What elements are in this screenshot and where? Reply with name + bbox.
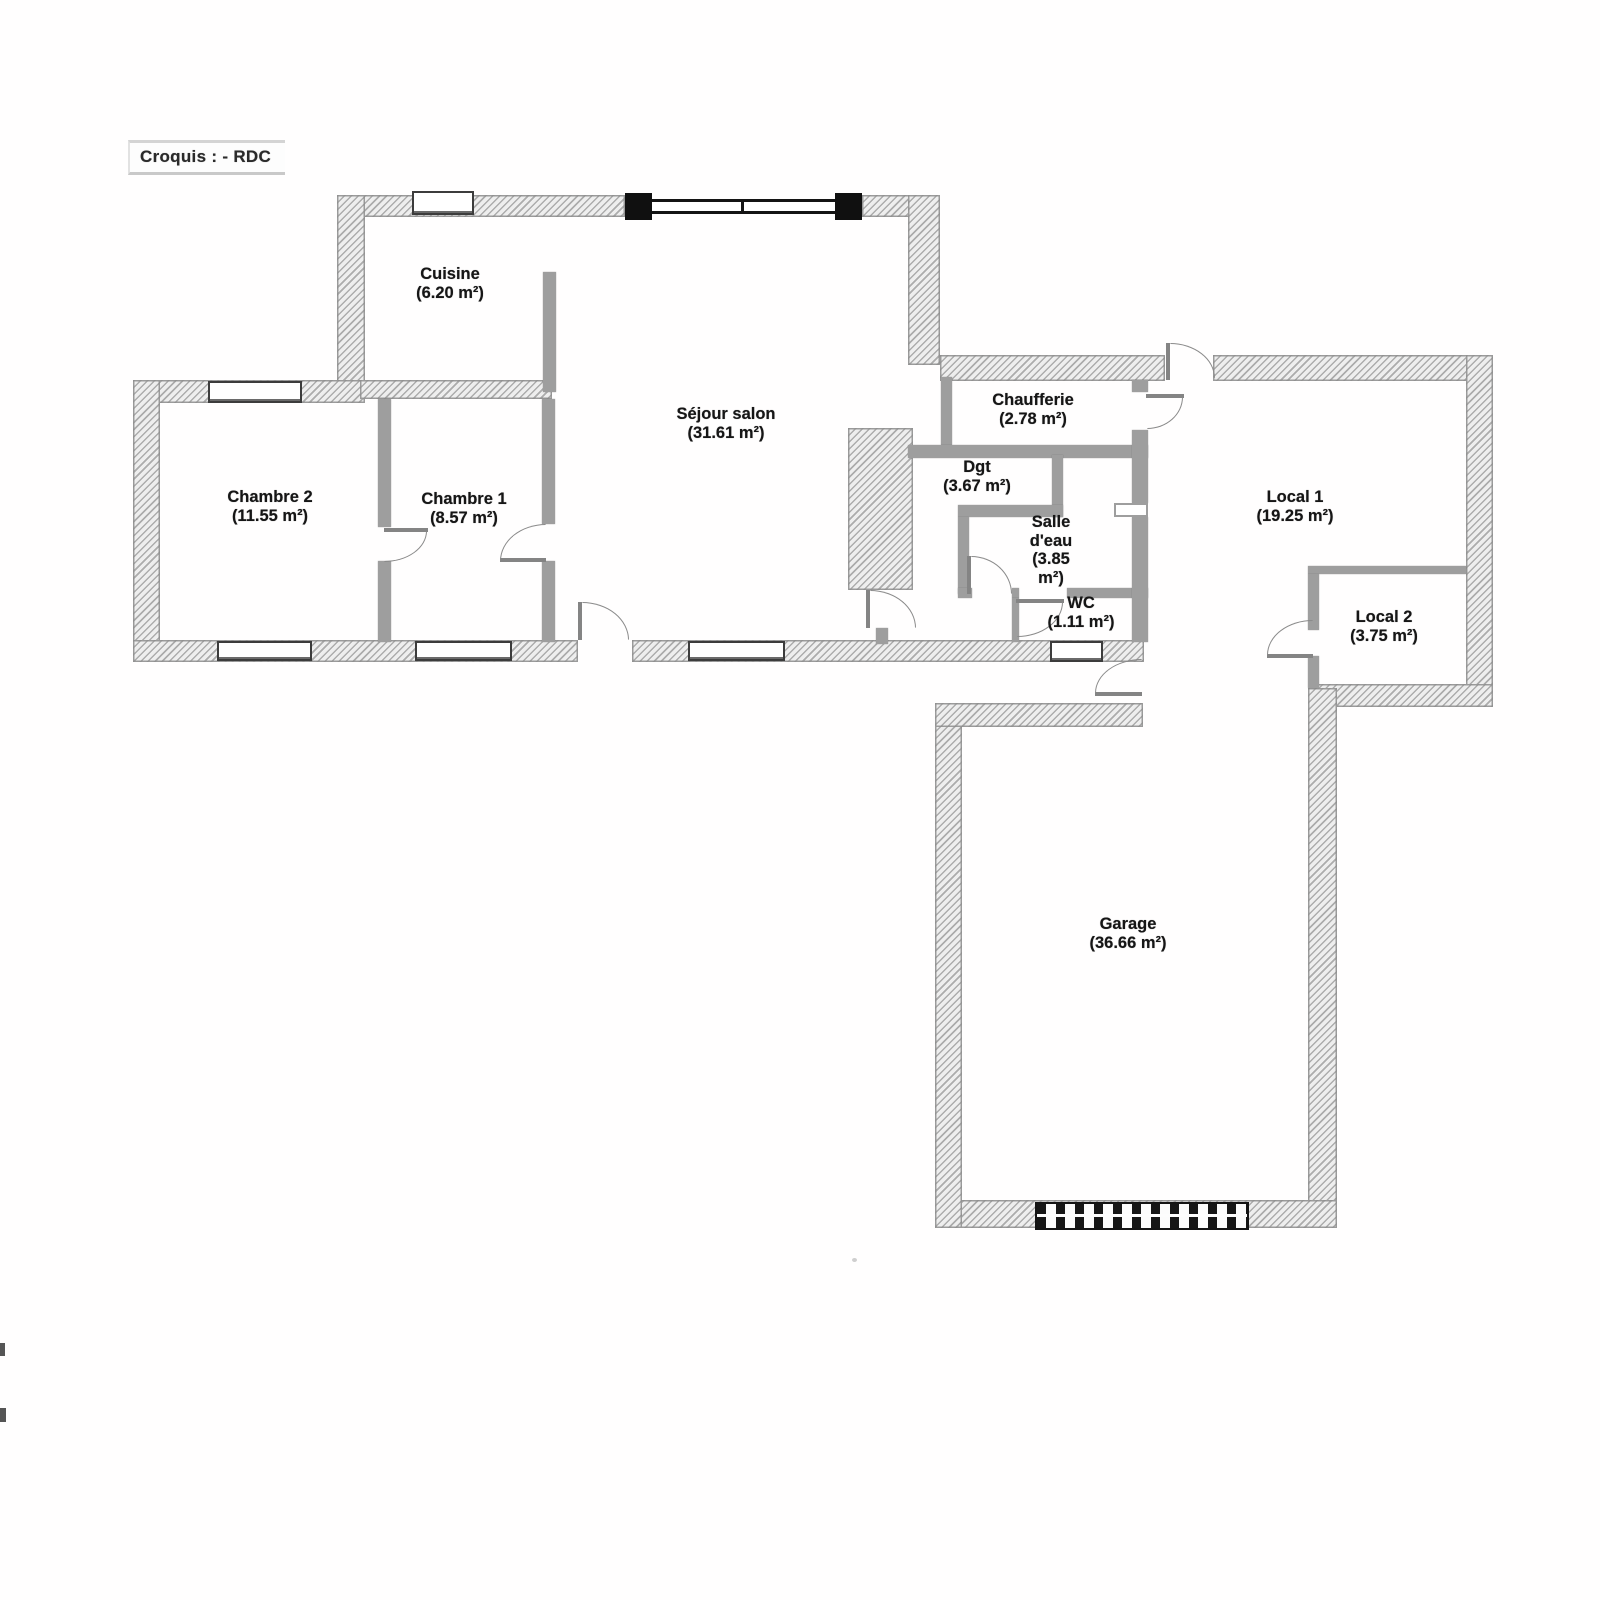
scan-artifact [0,1343,5,1356]
wall-niche [1114,503,1148,517]
door-swing-arc [582,602,629,640]
room-area: (11.55 m²) [227,507,312,526]
door-swing-arc [1267,620,1313,655]
room-label-sejour: Séjour salon (31.61 m²) [676,405,775,442]
wall-exterior [908,195,940,365]
room-name: Salle d'eau [1021,513,1081,550]
window [688,641,785,661]
wall-exterior [337,195,365,390]
room-label-chaufferie: Chaufferie (2.78 m²) [992,391,1074,428]
wall-exterior [1213,355,1493,381]
wall-exterior [935,703,962,1228]
wall-interior [378,561,391,642]
window [1050,641,1103,662]
bay-window-divider [741,199,744,214]
room-area: (19.25 m²) [1256,507,1333,526]
room-label-local2: Local 2 (3.75 m²) [1350,608,1418,645]
bay-window-post [835,193,862,220]
room-name: Chambre 1 [421,490,506,509]
room-area: (8.57 m²) [421,509,506,528]
window [217,641,312,661]
room-name: Local 2 [1350,608,1418,627]
wall-exterior [337,195,625,217]
wall-exterior [1308,688,1337,1228]
chimney-block [848,428,913,590]
room-name: Dgt [943,458,1011,477]
room-label-cuisine: Cuisine (6.20 m²) [416,265,484,302]
scan-artifact [852,1258,857,1262]
room-label-local1: Local 1 (19.25 m²) [1256,488,1333,525]
room-name: Local 1 [1256,488,1333,507]
window [412,191,474,215]
wall-exterior [133,380,160,662]
garage-door [1035,1202,1249,1230]
room-name: Chaufferie [992,391,1074,410]
door-swing-arc [500,524,546,561]
wall-interior [542,561,555,642]
room-area: (2.78 m²) [992,410,1074,429]
door-swing-arc [870,590,916,628]
room-name: Chambre 2 [227,488,312,507]
room-area: (3.67 m²) [943,477,1011,496]
room-area: (1.11 m²) [1048,613,1115,632]
plan-title: Croquis : - RDC [128,140,285,175]
wall-exterior [360,380,552,399]
wall-interior [876,628,888,644]
room-label-garage: Garage (36.66 m²) [1089,915,1166,952]
wall-interior [941,377,952,445]
door-swing-arc [384,531,427,562]
room-name: Garage [1089,915,1166,934]
window [208,381,302,403]
wall-interior [1012,588,1019,598]
wall-interior [1308,656,1319,688]
wall-interior [378,399,391,527]
wall-interior [1308,566,1466,574]
door-swing-arc [1147,397,1183,429]
door-swing-arc [971,556,1012,594]
room-label-wc: WC (1.11 m²) [1048,594,1115,631]
room-name: Séjour salon [676,405,775,424]
room-label-dgt: Dgt (3.67 m²) [943,458,1011,495]
door-swing-arc [1170,343,1215,378]
wall-exterior [935,703,1143,727]
bay-window-post [625,193,652,220]
wall-interior [543,272,556,392]
scan-artifact [0,1408,6,1422]
room-label-salle-deau: Salle d'eau (3.85 m²) [1021,513,1081,588]
room-area: (36.66 m²) [1089,934,1166,953]
wall-exterior [1466,355,1493,707]
wall-interior [1132,430,1148,503]
window [415,641,512,661]
door-swing-arc [1095,659,1142,693]
wall-interior [542,399,555,524]
room-label-chambre1: Chambre 1 (8.57 m²) [421,490,506,527]
room-area: (31.61 m²) [676,424,775,443]
wall-interior [1132,380,1148,392]
floorplan-canvas: Croquis : - RDC [0,0,1600,1600]
room-area: (3.75 m²) [1350,627,1418,646]
room-area: (3.85 m²) [1021,550,1081,587]
room-name: Cuisine [416,265,484,284]
room-label-chambre2: Chambre 2 (11.55 m²) [227,488,312,525]
wall-exterior [940,355,1165,381]
wall-interior [1132,517,1148,642]
room-name: WC [1048,594,1115,613]
room-area: (6.20 m²) [416,284,484,303]
wall-interior [908,445,1148,458]
